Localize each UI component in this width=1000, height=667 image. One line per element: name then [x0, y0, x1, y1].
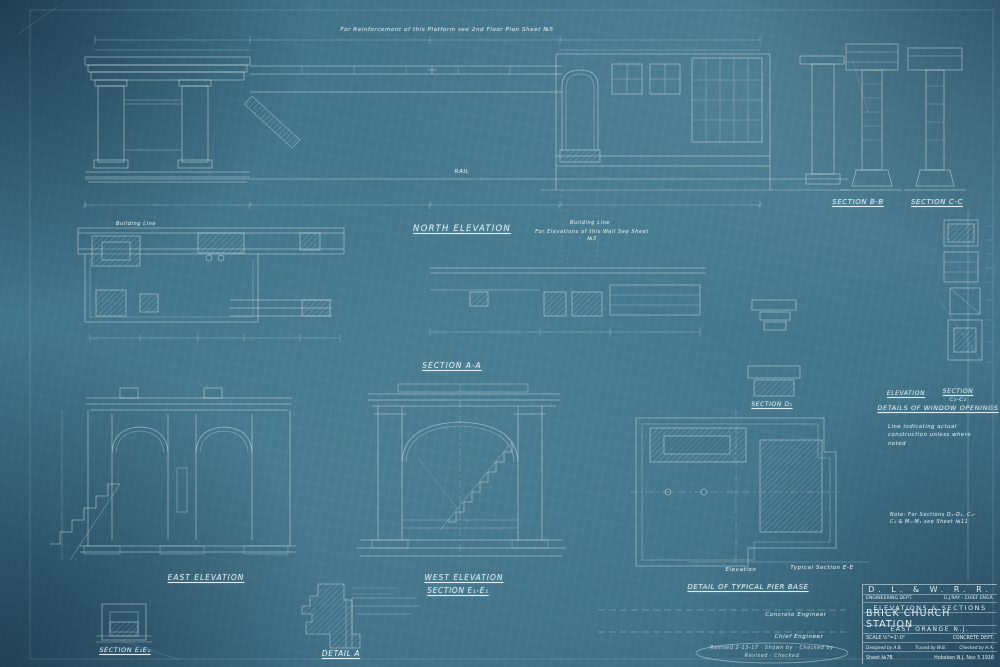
title-block-dept: ENGINEERING DEPT.: [866, 596, 912, 601]
west-elevation-title: WEST ELEVATION: [424, 573, 503, 582]
blueprint-sheet: For Reinforcement of this Platform see 2…: [0, 0, 1000, 667]
title-block-checked: Checked by H.A.: [959, 645, 994, 650]
north-elevation-title: NORTH ELEVATION: [413, 224, 511, 234]
building-line-label-right: Building Line: [570, 220, 610, 226]
building-line-label-left: Building Line: [116, 221, 156, 227]
pier-elevation-sublabel: Elevation: [726, 567, 757, 573]
section-e1-title: SECTION E₁-E₁: [427, 586, 488, 595]
sections-reference-note: Note: For Sections D₁-D₁, C₂-C₂ & M₁-M₁ …: [890, 512, 982, 526]
pier-base-detail-title: DETAIL OF TYPICAL PIER BASE: [687, 583, 808, 591]
window-section-label: SECTION: [943, 388, 974, 395]
section-cc-title: SECTION C-C: [911, 198, 963, 206]
east-elevation-title: EAST ELEVATION: [168, 573, 245, 582]
title-block-dept2: CONCRETE DEPT.: [953, 636, 994, 641]
title-block-sheet-no: Sheet №7B: [866, 656, 893, 661]
section-d2-title: SECTION D₂: [751, 401, 792, 408]
revision-stamp-line1: Revised 2-13-17 · Shown by · Checked by: [710, 646, 833, 651]
detail-a-title: DETAIL A: [322, 649, 360, 658]
section-bb-title: SECTION B-B: [832, 198, 884, 206]
typical-section-sublabel: Typical Section E-E: [790, 565, 853, 571]
concrete-engineer-signature-label: Concrete Engineer: [765, 612, 826, 618]
section-e2-title: SECTION E₂E₂: [99, 646, 150, 654]
chief-engineer-signature-label: Chief Engineer: [775, 634, 824, 640]
title-block-designed: Designed by A.B.: [866, 645, 902, 650]
window-elevation-label: ELEVATION: [887, 390, 925, 397]
window-section-sub-label: C₂-C₂: [949, 397, 966, 403]
title-block-station: BRICK CHURCH STATION: [863, 613, 997, 626]
wall-elevations-note: For Elevations of this Wall See Sheet №3: [532, 229, 652, 243]
rail-label: RAIL: [455, 169, 470, 175]
section-aa-title: SECTION A-A: [422, 361, 481, 370]
construction-lines-note: Line indicating actual construction unle…: [888, 423, 972, 448]
title-block: D. L. & W. R. R. ENGINEERING DEPT. G.J.R…: [862, 584, 997, 664]
platform-reinforcement-note: For Reinforcement of this Platform see 2…: [340, 27, 553, 33]
title-block-chief: G.J.RAY - CHIEF ENGR.: [944, 596, 994, 601]
window-openings-title: DETAILS OF WINDOW OPENINGS: [878, 404, 999, 412]
title-block-company: D. L. & W. R. R.: [863, 585, 997, 595]
title-block-scale: SCALE ½"=1'-0": [866, 636, 905, 641]
title-block-office-date: Hoboken N.J. Nov 5 1916: [934, 656, 994, 661]
revision-stamp-line2: Revised · Checked: [745, 654, 799, 659]
title-block-traced: Traced by W.B.: [915, 645, 946, 650]
